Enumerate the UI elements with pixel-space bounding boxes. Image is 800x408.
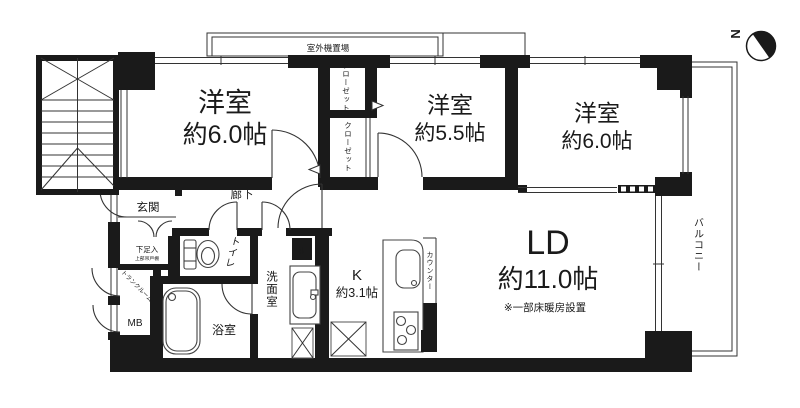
room-living-dining: LD 約11.0帖 ※一部床暖房設置 bbox=[498, 224, 599, 314]
washing-machine-area bbox=[292, 328, 313, 358]
room-bedroom-middle: 洋室 約5.5帖 bbox=[414, 92, 485, 145]
pipe-space-box: PS bbox=[421, 330, 437, 352]
closet-lower-label: クローゼット bbox=[343, 121, 352, 172]
balcony-label: バルコニー bbox=[692, 217, 704, 272]
compass: N bbox=[728, 26, 781, 61]
bedroom-right-size: 約6.0帖 bbox=[561, 130, 632, 153]
refrigerator-area bbox=[331, 322, 366, 356]
bathroom-label: 浴室 bbox=[212, 322, 236, 337]
hallway-label: 廊下 bbox=[231, 187, 254, 201]
staircase bbox=[39, 58, 116, 192]
living-dining-size: 約11.0帖 bbox=[498, 264, 599, 294]
room-bedroom-left: 洋室 約6.0帖 bbox=[183, 88, 268, 149]
room-bedroom-right: 洋室 約6.0帖 bbox=[561, 100, 632, 153]
balcony-rail bbox=[692, 62, 737, 356]
meter-box-label: MB bbox=[128, 318, 143, 329]
pipe-space-label: PS bbox=[426, 333, 433, 349]
floor-plan-svg: 室外機置場 bbox=[0, 0, 800, 408]
washroom-label: 洗面室 bbox=[265, 270, 278, 308]
bedroom-left-name: 洋室 bbox=[198, 88, 252, 118]
shoe-box-note: 上部吊戸棚 bbox=[135, 255, 159, 262]
toilet-label: トイレ bbox=[222, 235, 242, 270]
north-label: N bbox=[728, 29, 743, 38]
shelf-label: 棚 bbox=[298, 245, 306, 255]
kitchen-name: K bbox=[352, 267, 362, 284]
shelf-box: 棚 bbox=[292, 238, 312, 260]
room-kitchen: K 約3.1帖 bbox=[336, 267, 378, 300]
outdoor-unit-area: 室外機置場 bbox=[207, 33, 525, 56]
floor-heating-note: ※一部床暖房設置 bbox=[504, 301, 586, 314]
floor-plan: 室外機置場 bbox=[0, 0, 800, 408]
bedroom-left-size: 約6.0帖 bbox=[183, 121, 268, 149]
closet-arrow-icon bbox=[372, 101, 383, 110]
living-dining-name: LD bbox=[526, 224, 569, 262]
bedroom-right-name: 洋室 bbox=[574, 100, 620, 126]
sliding-door-hatch bbox=[618, 185, 655, 193]
closet-upper-label: クローゼット bbox=[341, 61, 350, 112]
fixtures: 棚 PS bbox=[163, 238, 437, 358]
trunk-room-label: トランクルーム bbox=[119, 269, 153, 303]
kitchen-size: 約3.1帖 bbox=[336, 285, 378, 300]
counter-label: カウンター bbox=[426, 251, 434, 291]
outdoor-unit-label: 室外機置場 bbox=[307, 43, 350, 53]
bathtub bbox=[163, 288, 200, 354]
entrance-label: 玄関 bbox=[137, 200, 160, 214]
toilet-fixture bbox=[184, 240, 219, 269]
closet-arrow-icon bbox=[309, 165, 320, 174]
shoe-box-label: 下足入 bbox=[136, 245, 159, 254]
bedroom-middle-name: 洋室 bbox=[427, 92, 473, 118]
bedroom-middle-size: 約5.5帖 bbox=[414, 122, 485, 145]
washbasin bbox=[290, 266, 320, 324]
